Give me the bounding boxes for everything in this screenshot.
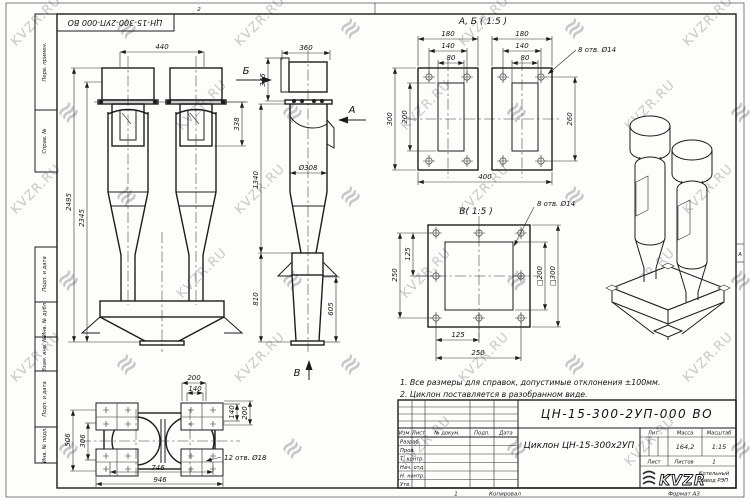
fold-mark-bottom: 1 [454, 492, 458, 498]
stamp-podp-data-1: Подп. и дата [42, 256, 48, 291]
dim-label: 140 [228, 405, 236, 419]
format-label: Формат А3 [668, 492, 700, 498]
product-name: Циклон ЦН-15-300х2УП [524, 441, 635, 451]
stamp-podp-data-2: Подп. и дата [42, 381, 48, 416]
holes-callout: 8 отв. Ø14 [537, 200, 575, 208]
dim-label: 605 [327, 302, 335, 316]
stamp-inv-podl: Инв. № подл. [42, 427, 48, 463]
scale-value: 1:15 [712, 443, 727, 451]
dim-label: □200 [536, 265, 544, 286]
fold-mark-top: 2 [197, 7, 201, 13]
mass-value: 164,2 [676, 443, 695, 451]
holes-callout: 8 отв. Ø14 [578, 46, 616, 54]
holes-callout: 12 отв. Ø18 [224, 454, 267, 462]
row-tkontr: Т. контр. [400, 457, 424, 463]
sheets-label: Листов [673, 460, 693, 466]
dim-label: 946 [153, 476, 167, 484]
title-block: Изм. Лист № докум. Подп. Дата Разраб. Пр… [398, 400, 736, 498]
margin-stamps: Перв. примен. Справ. № Подп. и дата Инв.… [35, 14, 57, 463]
row-razrab: Разраб. [400, 440, 420, 446]
dim-label: 810 [252, 292, 260, 306]
col-izm: Изм. [399, 431, 411, 437]
dim-label: 400 [478, 173, 492, 181]
section-label-b: Б [243, 66, 250, 77]
coil-icon [643, 472, 655, 485]
row-prov: Пров. [400, 448, 415, 454]
dim-label: 125 [404, 247, 412, 261]
stamp-sprav-no: Справ. № [42, 128, 48, 153]
dim-label: 140 [515, 42, 529, 50]
row-nkontr: Н. контр. [400, 474, 425, 480]
engineering-drawing: 2 А ЦН-15-300-2УП-000 ВО Перв. примен. С… [0, 0, 750, 500]
scale-label: Масштаб [707, 431, 732, 437]
dim-label: 80 [447, 54, 456, 62]
copied-label: Копировал [489, 492, 521, 498]
dim-label: 80 [521, 54, 530, 62]
row-nachotd: Нач. отд. [400, 465, 425, 471]
row-utv: Утв. [400, 482, 411, 488]
dim-label: 250 [471, 349, 485, 357]
section-label-v: В [294, 368, 301, 379]
note-line-1: 1. Все размеры для справок, допустимые о… [400, 378, 660, 387]
zone-letter: А [737, 252, 742, 258]
dim-label: 746 [151, 464, 165, 472]
dim-label: 2345 [78, 209, 86, 227]
front-view: 440 338 2495 2345 [65, 43, 248, 352]
stamp-inv-dubl: Инв. № дубл. [42, 301, 48, 337]
stamp-vzam-inv: Взам. инв. № [42, 336, 48, 371]
dim-label: 260 [566, 112, 574, 126]
col-doc: № докум. [433, 431, 460, 437]
note-line-2: 2. Циклон поставляется в разобранном вид… [400, 390, 588, 399]
dim-label: 306 [79, 434, 87, 448]
section-label-a: А [348, 105, 356, 116]
dim-label: 125 [451, 331, 465, 339]
company-logo: KVZR Котельный завод РЭП [643, 471, 730, 489]
view-v: В( 1:5 ) 250 125 125 250 □200 □300 8 отв… [391, 200, 575, 361]
dim-label: 506 [64, 433, 72, 447]
dim-label: 360 [299, 44, 313, 52]
dim-label: 140 [441, 42, 455, 50]
doc-number: ЦН-15-300-2УП-000 ВО [541, 407, 713, 421]
col-list: Лист [411, 431, 426, 437]
dim-label: 180 [441, 30, 455, 38]
side-view: 360 345 1340 810 Ø308 605 Б А В [236, 44, 366, 380]
sheet-label: Лист [646, 460, 661, 466]
view-title: А, Б ( 1:5 ) [458, 17, 507, 27]
dim-label: 200 [187, 374, 201, 382]
lit-label: Лит. [647, 431, 660, 437]
dim-label: □300 [549, 265, 557, 286]
logo-subtitle-1: Котельный [699, 471, 730, 477]
dim-label: Ø308 [298, 164, 318, 172]
dim-label: 200 [241, 406, 249, 420]
dim-label: 440 [155, 43, 169, 51]
dim-label: 180 [515, 30, 529, 38]
logo-subtitle-2: завод РЭП [700, 478, 728, 484]
mass-label: Масса [677, 431, 694, 437]
view-ab: А, Б ( 1:5 ) 180 180 140 140 80 [386, 17, 616, 185]
dim-label: 250 [391, 268, 399, 282]
dim-label: 140 [188, 385, 202, 393]
notes: 1. Все размеры для справок, допустимые о… [400, 378, 660, 399]
drawing-sheet: KVZR.RU≋KVZR.RU≋KVZR.RU≋KVZR.RU≋KVZR.RU≋… [0, 0, 750, 500]
dim-label: 338 [233, 117, 241, 131]
dim-label: 1340 [252, 171, 260, 189]
sheets-value: 1 [712, 460, 716, 466]
isometric-view [606, 116, 730, 340]
dim-label: 300 [386, 112, 394, 126]
dim-label: 2495 [65, 193, 73, 211]
stamp-perv-primen: Перв. примен. [42, 43, 48, 82]
doc-number-top: ЦН-15-300-2УП-000 ВО [68, 18, 163, 27]
col-data: Дата [498, 431, 512, 437]
plan-view: 200 140 140 200 306 506 746 946 12 отв. … [64, 374, 267, 487]
view-title: В( 1:5 ) [459, 207, 492, 217]
dim-label: 200 [401, 110, 409, 124]
col-podp: Подп. [474, 431, 490, 437]
